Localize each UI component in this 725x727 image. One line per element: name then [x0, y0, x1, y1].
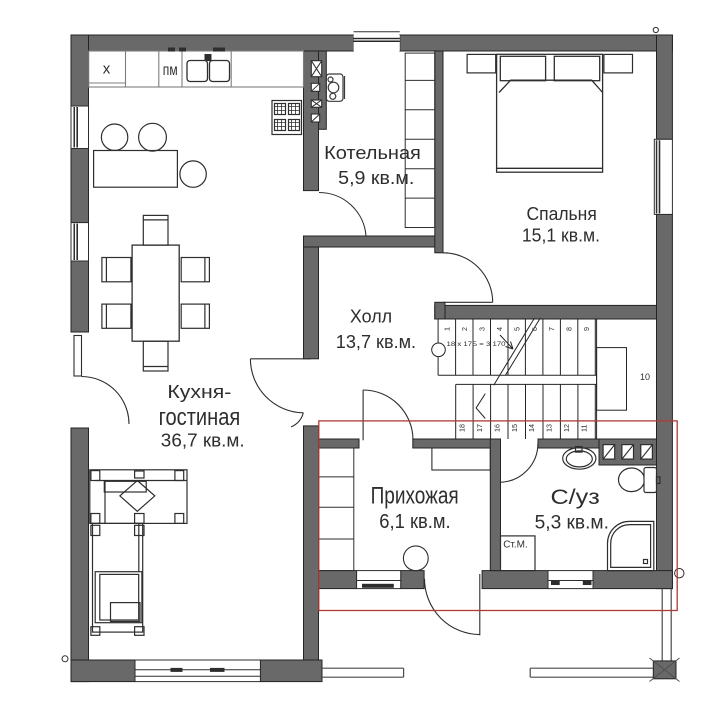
svg-text:6: 6 — [530, 327, 539, 331]
svg-text:Спальня: Спальня — [527, 203, 597, 224]
svg-text:3: 3 — [477, 327, 486, 331]
svg-text:5,3 кв.м.: 5,3 кв.м. — [535, 513, 609, 534]
svg-text:С/уз: С/уз — [551, 486, 600, 509]
svg-text:Кухня-: Кухня- — [167, 381, 231, 402]
svg-text:Прихожая: Прихожая — [371, 483, 459, 510]
svg-text:13,7 кв.м.: 13,7 кв.м. — [336, 331, 416, 352]
svg-text:10: 10 — [640, 372, 650, 382]
svg-text:11: 11 — [580, 425, 589, 432]
svg-text:7: 7 — [547, 327, 556, 331]
svg-text:16: 16 — [492, 424, 501, 432]
svg-text:4: 4 — [495, 327, 504, 331]
svg-text:Ст.М.: Ст.М. — [503, 539, 528, 550]
svg-text:1: 1 — [443, 327, 452, 331]
svg-text:13: 13 — [545, 424, 554, 432]
svg-text:пм: пм — [163, 62, 178, 79]
svg-text:14: 14 — [527, 424, 536, 432]
svg-text:х: х — [103, 61, 111, 78]
svg-text:5: 5 — [512, 327, 521, 331]
svg-text:18 x 17Б = 3 170: 18 x 17Б = 3 170 — [447, 341, 507, 348]
svg-text:17: 17 — [475, 424, 484, 432]
svg-text:2: 2 — [460, 327, 469, 331]
svg-text:8: 8 — [565, 327, 574, 331]
svg-text:12: 12 — [562, 424, 571, 432]
svg-text:9: 9 — [582, 327, 591, 331]
svg-text:6,1 кв.м.: 6,1 кв.м. — [379, 511, 450, 533]
svg-text:36,7 кв.м.: 36,7 кв.м. — [161, 430, 245, 451]
svg-text:Холл: Холл — [350, 305, 392, 326]
svg-text:гостиная: гостиная — [159, 404, 241, 431]
svg-text:18: 18 — [457, 424, 466, 432]
svg-text:15,1 кв.м.: 15,1 кв.м. — [522, 225, 600, 246]
svg-text:Котельная: Котельная — [324, 142, 421, 163]
svg-text:5,9 кв.м.: 5,9 кв.м. — [338, 167, 414, 188]
svg-text:15: 15 — [510, 424, 519, 432]
